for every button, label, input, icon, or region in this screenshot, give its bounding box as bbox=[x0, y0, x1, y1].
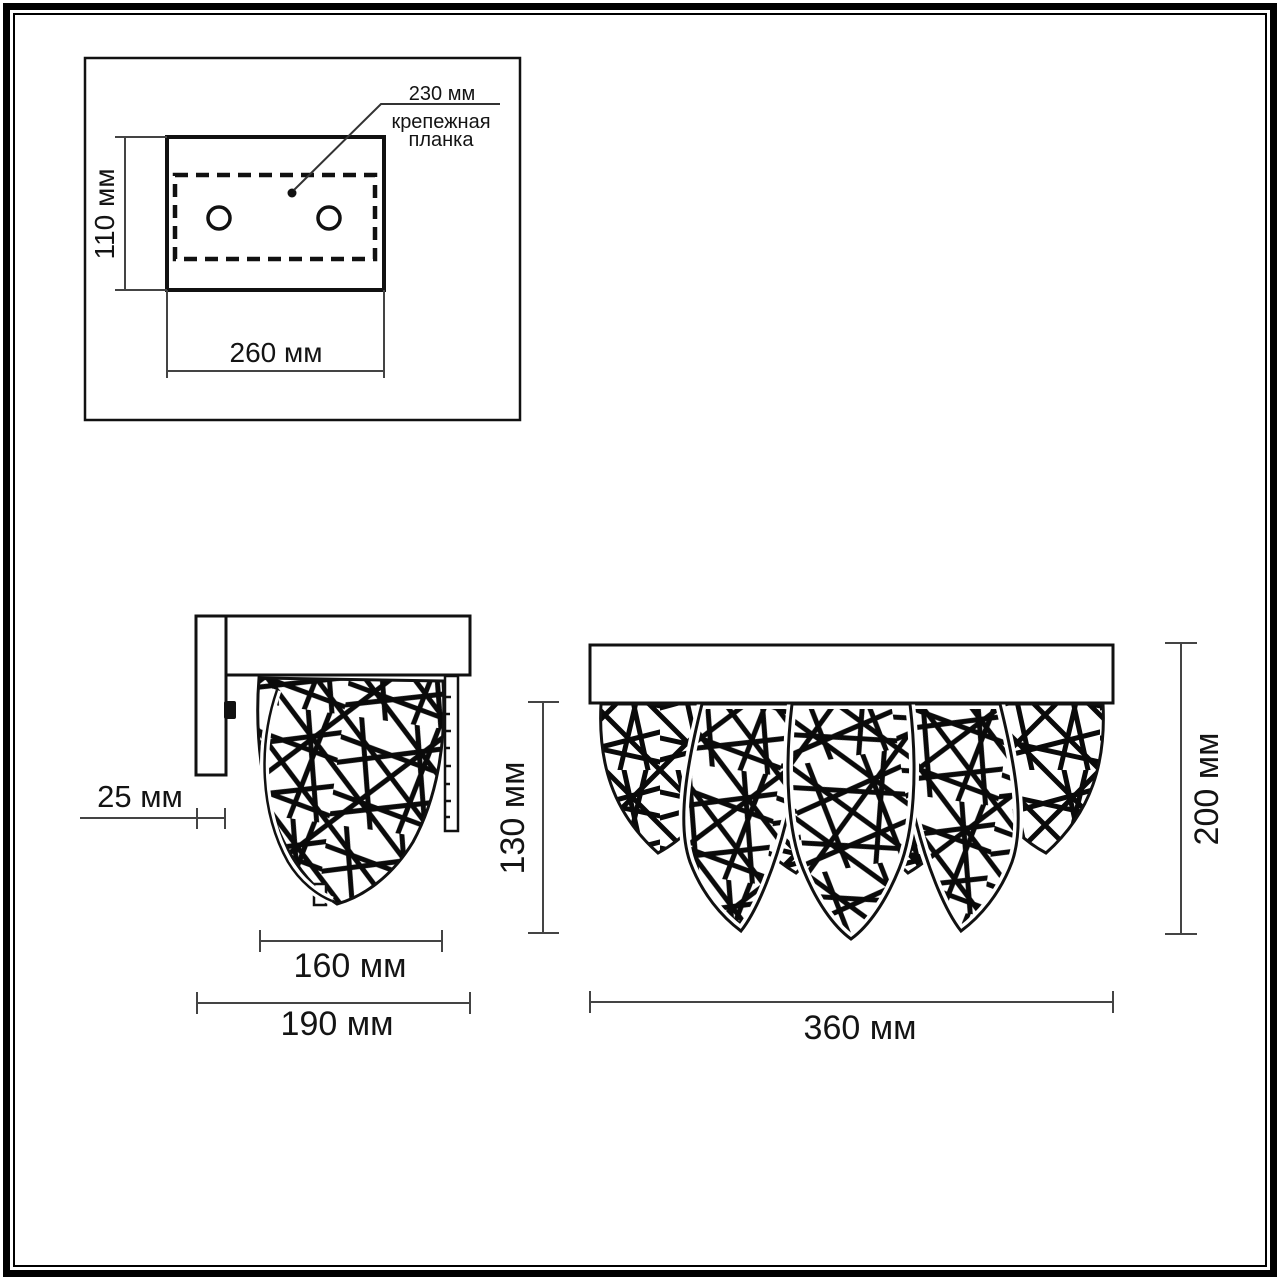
shade-cone-side bbox=[258, 678, 444, 904]
screw-hole-left bbox=[208, 207, 230, 229]
mounting-plate-view: 110 мм 260 мм 230 мм крепежная планка bbox=[85, 58, 520, 420]
bracket-length-label: 230 мм bbox=[409, 83, 475, 105]
screw-hole-right bbox=[318, 207, 340, 229]
front-petal-middle-halo bbox=[788, 704, 914, 939]
crystal-strip-side bbox=[445, 676, 458, 831]
bracket-caption-line2: планка bbox=[409, 129, 475, 151]
top-plate-front bbox=[590, 645, 1113, 703]
dim-label-360: 360 мм bbox=[804, 1009, 917, 1047]
mounting-plate-outline bbox=[167, 137, 384, 290]
dim-label-260: 260 мм bbox=[230, 337, 323, 368]
dim-shade-height-130 bbox=[528, 702, 559, 933]
wall-mount-plate bbox=[196, 616, 226, 775]
dim-label-160: 160 мм bbox=[294, 947, 407, 985]
top-plate-side bbox=[226, 616, 470, 675]
dim-label-25: 25 мм bbox=[97, 779, 183, 814]
dim-label-110: 110 мм bbox=[89, 169, 120, 260]
dim-label-200: 200 мм bbox=[1188, 733, 1226, 846]
dim-label-190: 190 мм bbox=[281, 1005, 394, 1043]
lamp-dimensions-drawing: 110 мм 260 мм 230 мм крепежная планка bbox=[0, 0, 1280, 1280]
dim-label-130: 130 мм bbox=[494, 762, 532, 875]
lamp-front-view: 360 мм 200 мм bbox=[590, 643, 1226, 1047]
mount-knob bbox=[224, 701, 236, 719]
lamp-side-view: 25 мм 160 мм 190 мм 130 мм bbox=[80, 616, 559, 1043]
technical-drawing-page: 110 мм 260 мм 230 мм крепежная планка bbox=[0, 0, 1280, 1280]
